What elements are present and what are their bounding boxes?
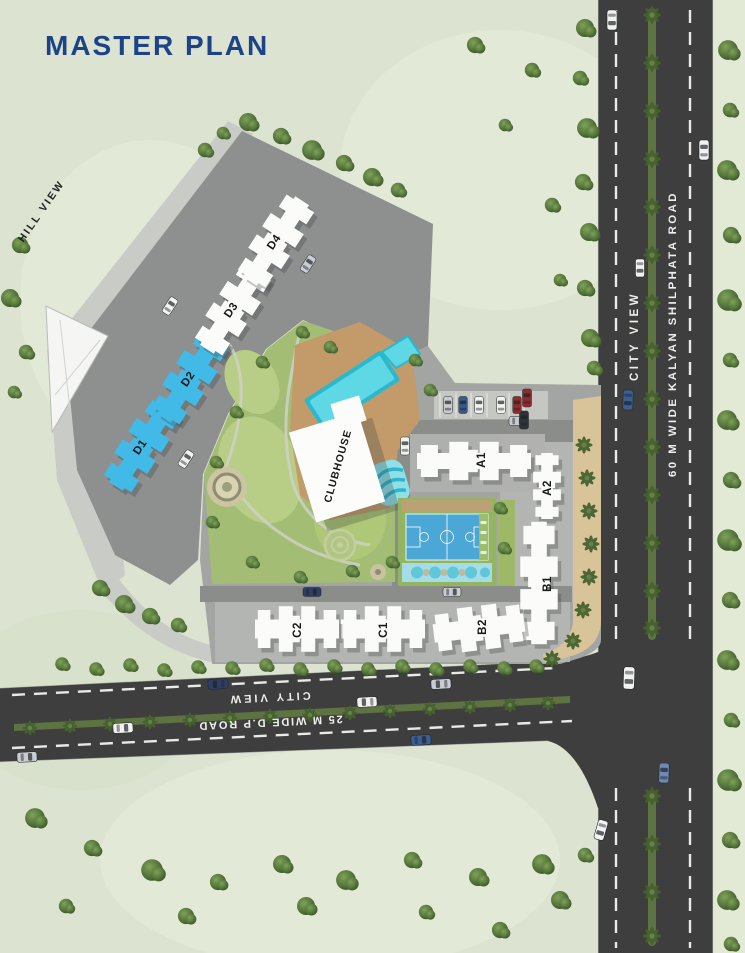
kalyan-shilphata-road-label: 60 M WIDE KALYAN SHILPHATA ROAD	[667, 191, 679, 477]
label-c2: C2	[292, 622, 304, 638]
label-c1: C1	[378, 622, 390, 638]
city-view-label-vertical: CITY VIEW	[629, 291, 641, 381]
basketball-court	[398, 498, 496, 586]
label-b1: B1	[542, 576, 554, 592]
page-title: MASTER PLAN	[45, 30, 269, 61]
label-b2: B2	[477, 619, 489, 635]
label-a1: A1	[476, 452, 488, 468]
master-plan-canvas: CITY VIEW 60 M WIDE KALYAN SHILPHATA ROA…	[0, 0, 745, 953]
garden-circle-feature	[207, 467, 247, 507]
garden-lawn-circle	[325, 530, 355, 560]
kids-pool	[402, 563, 492, 582]
label-a2: A2	[542, 480, 554, 496]
